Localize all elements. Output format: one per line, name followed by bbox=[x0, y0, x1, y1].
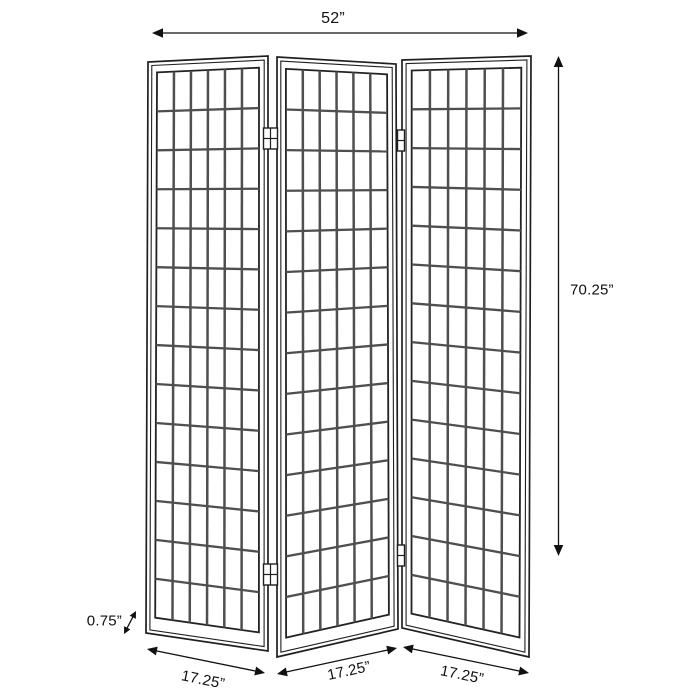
panel-right-panel bbox=[402, 56, 531, 657]
hinge-left-top bbox=[264, 128, 278, 149]
hinge-left-bottom bbox=[264, 564, 278, 585]
panel-left-panel bbox=[146, 56, 268, 651]
total-width-dimension-label: 52” bbox=[321, 10, 345, 28]
folding-screen-drawing bbox=[0, 0, 700, 700]
hinge-right-bottom bbox=[398, 545, 405, 566]
dimension-diagram: 52” 70.25” 0.75” 17.25” 17.25” 17.25” bbox=[0, 0, 700, 700]
thickness-arrow bbox=[124, 611, 136, 634]
height-arrow bbox=[554, 56, 564, 556]
height-dimension-label: 70.25” bbox=[570, 282, 614, 299]
thickness-dimension-label: 0.75” bbox=[87, 613, 122, 630]
hinge-right-top bbox=[398, 130, 405, 151]
width-arrow bbox=[152, 28, 528, 38]
panel-middle-panel bbox=[277, 57, 398, 657]
